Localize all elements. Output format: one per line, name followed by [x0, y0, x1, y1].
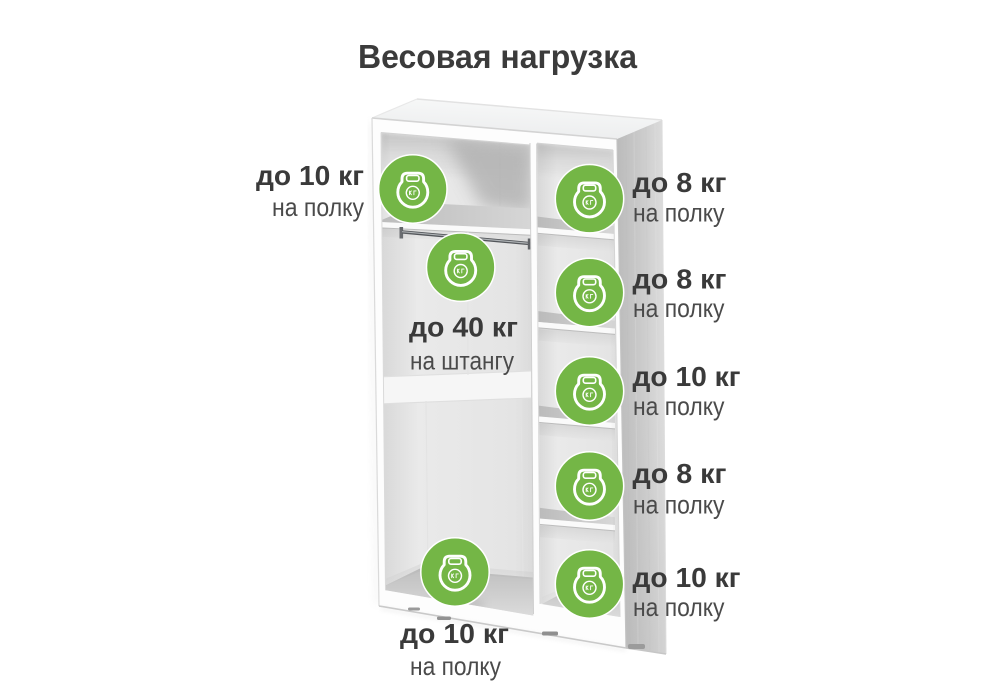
svg-text:на полку: на полку [633, 490, 725, 520]
svg-text:до 8 кг: до 8 кг [633, 167, 727, 198]
svg-text:до 8 кг: до 8 кг [633, 458, 727, 489]
svg-text:на полку: на полку [410, 651, 501, 681]
svg-text:до 10 кг: до 10 кг [256, 160, 364, 191]
svg-text:на штангу: на штангу [410, 346, 514, 376]
svg-text:до 40 кг: до 40 кг [409, 312, 518, 343]
svg-text:до 10 кг: до 10 кг [633, 562, 741, 593]
svg-text:до 10 кг: до 10 кг [400, 618, 509, 649]
svg-text:на полку: на полку [633, 391, 725, 421]
svg-text:до 10 кг: до 10 кг [633, 361, 741, 392]
svg-text:на полку: на полку [272, 192, 364, 222]
svg-text:на полку: на полку [633, 293, 725, 323]
svg-text:на полку: на полку [633, 198, 725, 228]
svg-text:до 8 кг: до 8 кг [633, 264, 727, 295]
svg-text:Весовая нагрузка: Весовая нагрузка [358, 38, 638, 75]
svg-text:на полку: на полку [633, 592, 725, 622]
